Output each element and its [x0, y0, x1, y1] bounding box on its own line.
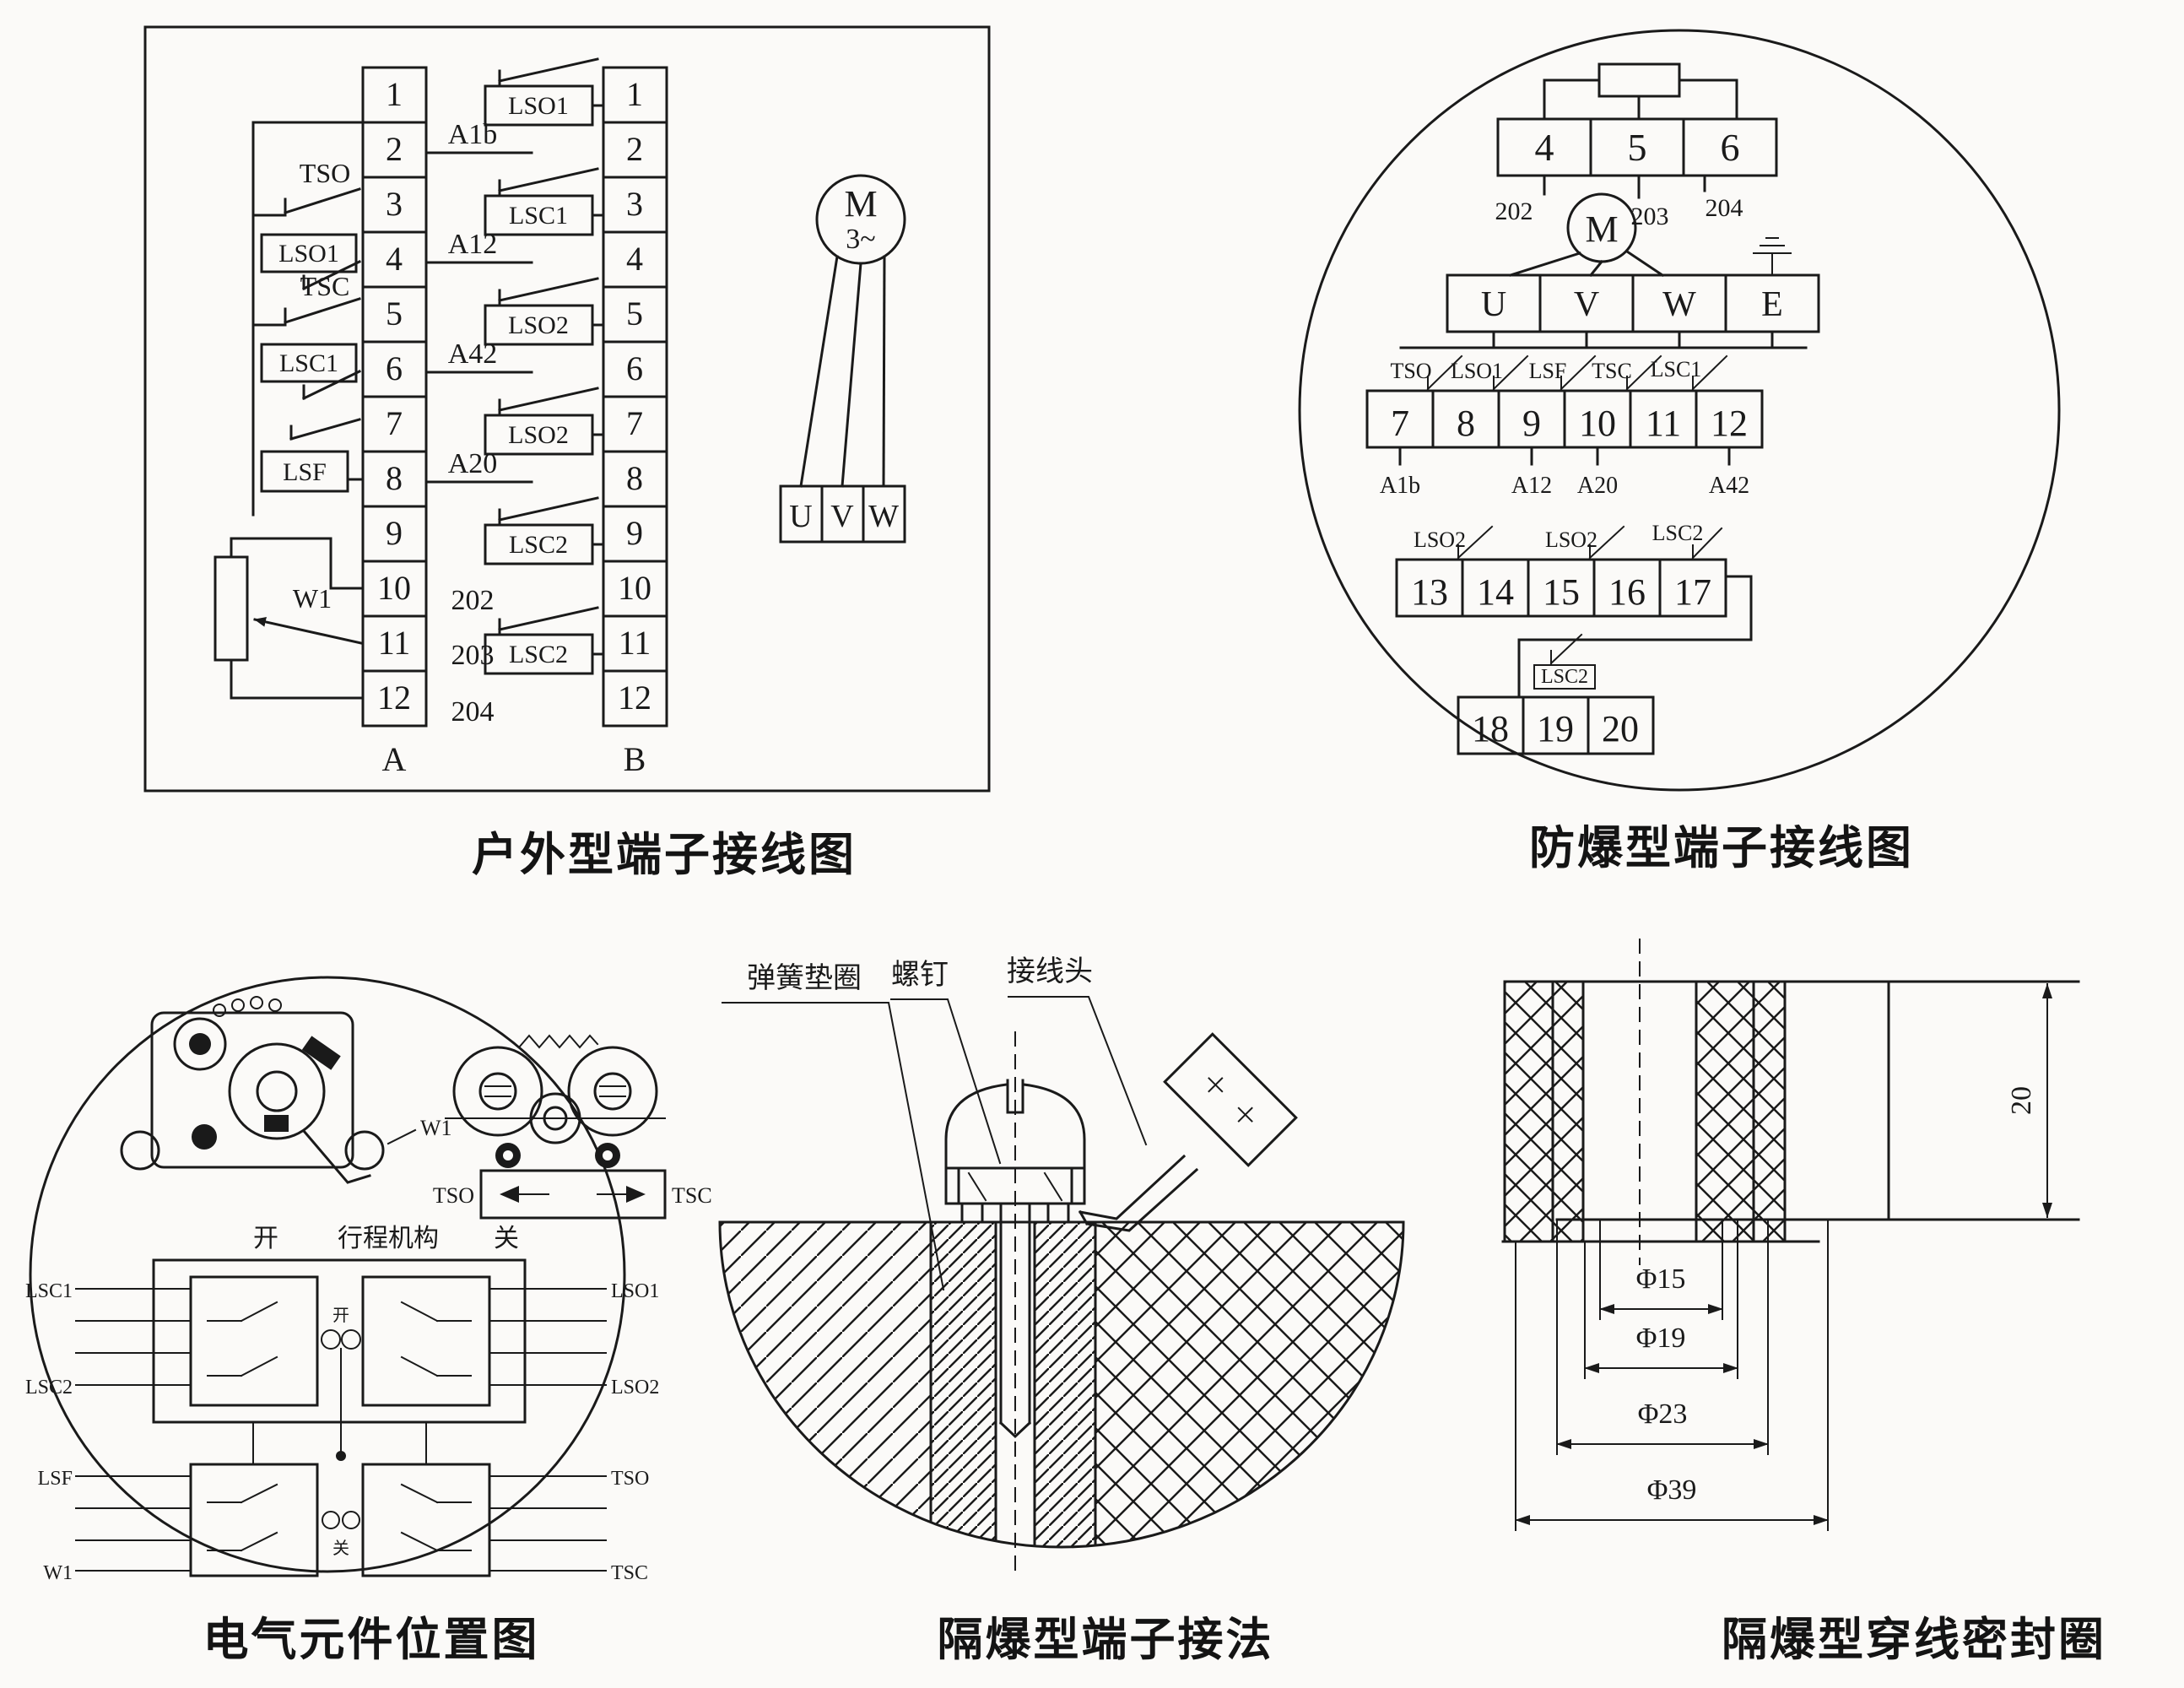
group1-lsc2-label: LSC2	[25, 1377, 73, 1399]
explosion-proof-figure: 4 5 6 202 203 204 M U V W E	[1266, 15, 2093, 819]
terminal-row-456: 4 5 6 202 203 204	[1495, 119, 1777, 230]
caption-seal-ring: 隔爆型穿线密封圈	[1644, 1602, 2184, 1669]
terminal-row-uvwe: U V W E	[1447, 275, 1819, 332]
motor-w: W	[868, 499, 899, 534]
travel-mechanism-label: 行程机构	[338, 1225, 439, 1252]
group2-lsf-label: LSF	[38, 1468, 73, 1490]
terminal-5: 5	[1628, 126, 1647, 169]
spring-washer-label: 弹簧垫圈	[747, 962, 862, 994]
label-204: 204	[1706, 194, 1743, 222]
motor-m: M	[844, 183, 877, 225]
label-202: 202	[451, 585, 495, 616]
motor-phase: 3~	[846, 224, 875, 255]
label-a42: A42	[1709, 473, 1749, 499]
terminal-14: 14	[1477, 571, 1514, 613]
close-label: 关	[494, 1225, 519, 1252]
terminal-b-8: 8	[626, 459, 643, 497]
terminal-a-1: 1	[386, 75, 403, 113]
terminal-row-18-20: 18 19 20	[1458, 697, 1653, 754]
terminal-a-4: 4	[386, 240, 403, 278]
switch-tso: TSO	[1390, 359, 1431, 383]
terminal-6: 6	[1721, 126, 1740, 169]
row3-switches: TSO LSO1 LSF TSC LSC1	[1390, 356, 1727, 389]
terminal-v: V	[1574, 285, 1599, 324]
motor-u: U	[789, 499, 812, 534]
height-dimension: 20	[2006, 984, 2047, 1217]
terminal-strip-a: 1 2 3 4 5 6 7 8 9 10 11 12 A	[363, 68, 426, 778]
seal-section	[1503, 939, 2079, 1264]
motor-symbol: M 3~ U V W	[781, 176, 905, 542]
label-202: 202	[1495, 197, 1533, 225]
switch-lsc1: LSC1	[1651, 357, 1702, 381]
terminal-a-8: 8	[386, 459, 403, 497]
outdoor-wiring-figure: 1 2 3 4 5 6 7 8 9 10 11 12 A A1b A12 A42…	[135, 17, 1013, 814]
terminal-connection-figure: 弹簧垫圈 螺钉 接线头	[690, 952, 1436, 1595]
torque-tso-label: TSO	[433, 1183, 474, 1208]
group1-center-mark: 开	[332, 1307, 349, 1325]
terminal-13: 13	[1411, 571, 1448, 613]
seal-ring-figure: 20 Φ15 Φ19 Φ23 Φ39	[1500, 927, 2150, 1610]
strip-b-switches: LSO1 LSC1 LSO2 LSO2 LSC2 LSC2	[485, 59, 603, 674]
label-203: 203	[451, 640, 495, 671]
pot-w1-label: W1	[420, 1116, 452, 1140]
dim-20: 20	[2006, 1086, 2037, 1115]
row4-switches: LSO2 LSO2 LSC2	[1414, 521, 1722, 558]
wire-lug	[1080, 1034, 1296, 1231]
terminal-b-1: 1	[626, 75, 643, 113]
terminal-b-5: 5	[626, 295, 643, 333]
terminal-w: W	[1662, 285, 1696, 324]
terminal-18: 18	[1472, 708, 1509, 749]
caption-outdoor-wiring: 户外型端子接线图	[394, 817, 934, 884]
terminal-b-11: 11	[619, 624, 651, 662]
pot-w1-label: W1	[293, 583, 332, 614]
motor-v: V	[830, 499, 854, 534]
b-switch-5: LSC2	[509, 531, 568, 559]
switch-group-2: 关 LSF W1 TSO TSC	[38, 1349, 650, 1584]
row3-wire-labels: A1b A12 A20 A42	[1380, 447, 1749, 499]
terminal-17: 17	[1674, 571, 1711, 613]
terminal-11: 11	[1646, 403, 1681, 444]
terminal-a-6: 6	[386, 349, 403, 387]
heater-resistor	[1544, 64, 1737, 119]
terminal-b-7: 7	[626, 404, 643, 442]
switch-lso1: LSO1	[1451, 359, 1503, 383]
terminal-b-10: 10	[618, 569, 651, 607]
switch-lsc1-label: LSC1	[279, 349, 338, 377]
terminal-row-7-12: 7 8 9 10 11 12	[1367, 391, 1762, 447]
terminal-b-3: 3	[626, 185, 643, 223]
group2-center-mark: 关	[332, 1539, 349, 1558]
switch-group-1: 开 LSC1 LSC2 LSO1 LSO2	[25, 1260, 659, 1422]
caption-terminal-method: 隔爆型端子接法	[835, 1602, 1376, 1669]
terminal-10: 10	[1579, 403, 1616, 444]
screw-label: 螺钉	[891, 959, 949, 991]
group1-lso2-label: LSO2	[611, 1377, 659, 1399]
terminal-a-3: 3	[386, 185, 403, 223]
terminal-b-2: 2	[626, 130, 643, 168]
b-switch-3: LSO2	[508, 311, 569, 339]
strip-a-switch-ladder: TSO LSO1 TSC LSC1 LSF	[253, 122, 363, 515]
group2-w1-label: W1	[43, 1562, 73, 1584]
row5-switch: LSC2	[1534, 635, 1595, 689]
terminal-15: 15	[1543, 571, 1580, 613]
switch-tsc: TSC	[1592, 359, 1632, 383]
open-label: 开	[253, 1225, 278, 1252]
terminal-4: 4	[1535, 126, 1554, 169]
terminal-19: 19	[1537, 708, 1574, 749]
terminal-u: U	[1481, 285, 1506, 324]
strip-b-label: B	[624, 740, 646, 778]
label-a1b: A1b	[1380, 473, 1420, 499]
group2-tsc-label: TSC	[611, 1562, 648, 1584]
terminal-a-11: 11	[378, 624, 411, 662]
terminal-7: 7	[1391, 403, 1409, 444]
strip-a-label: A	[382, 740, 407, 778]
switch-lsc2-a: LSC2	[1652, 521, 1704, 545]
b-switch-2: LSC1	[509, 202, 568, 230]
torque-mechanism: TSO TSC	[433, 1036, 712, 1218]
switch-tsc-label: TSC	[300, 271, 350, 301]
dim-phi23: Φ23	[1638, 1399, 1688, 1430]
terminal-a-12: 12	[377, 679, 411, 717]
ground-icon	[1754, 238, 1791, 275]
dim-phi15: Φ15	[1636, 1263, 1686, 1295]
dim-phi39: Φ39	[1647, 1474, 1697, 1506]
group1-lsc1-label: LSC1	[25, 1280, 73, 1302]
potentiometer-w1: W1	[215, 538, 361, 698]
switch-lsf-label: LSF	[283, 458, 327, 486]
outdoor-outer-frame	[145, 27, 989, 791]
terminal-a-7: 7	[386, 404, 403, 442]
group2-tso-label: TSO	[611, 1468, 649, 1490]
label-204: 204	[451, 696, 495, 728]
switch-lso1-label: LSO1	[278, 240, 339, 268]
terminal-row-13-17: 13 14 15 16 17	[1397, 560, 1726, 616]
b-switch-4: LSO2	[508, 421, 569, 449]
terminal-e: E	[1761, 285, 1783, 324]
diameter-dimensions: Φ15 Φ19 Φ23 Φ39	[1516, 1220, 1828, 1530]
b-switch-6: LSC2	[509, 641, 568, 668]
caption-explosion-wiring: 防爆型端子接线图	[1451, 810, 1992, 877]
mechanism-row-labels: 开 行程机构 关	[253, 1225, 519, 1252]
manual-page: 1 2 3 4 5 6 7 8 9 10 11 12 A A1b A12 A42…	[0, 0, 2184, 1688]
terminal-b-12: 12	[618, 679, 651, 717]
terminal-8: 8	[1457, 403, 1475, 444]
terminal-a-10: 10	[377, 569, 411, 607]
terminal-9: 9	[1522, 403, 1541, 444]
terminal-16: 16	[1608, 571, 1646, 613]
switch-tso-label: TSO	[300, 158, 350, 188]
group1-lso1-label: LSO1	[611, 1280, 659, 1302]
terminal-a-9: 9	[386, 514, 403, 552]
motor-m: M	[1585, 208, 1618, 250]
component-location-figure: W1 TSO TSC 开 行程机构 关 开 LSC	[25, 949, 633, 1633]
terminal-a-5: 5	[386, 295, 403, 333]
terminal-b-9: 9	[626, 514, 643, 552]
label-a12: A12	[1511, 473, 1552, 499]
terminal-a-2: 2	[386, 130, 403, 168]
terminal-20: 20	[1602, 708, 1639, 749]
switch-lsc2-b: LSC2	[1541, 666, 1588, 688]
terminal-strip-b: 1 2 3 4 5 6 7 8 9 10 11 12 B	[603, 68, 667, 778]
gland-body	[720, 1222, 1403, 1560]
caption-component-location: 电气元件位置图	[101, 1602, 641, 1669]
cam-mechanism: W1	[122, 997, 452, 1182]
terminal-b-6: 6	[626, 349, 643, 387]
switch-rail	[1401, 332, 1806, 348]
terminal-12: 12	[1711, 403, 1748, 444]
terminal-b-4: 4	[626, 240, 643, 278]
label-a20: A20	[1577, 473, 1618, 499]
b-switch-1: LSO1	[508, 92, 569, 120]
dim-phi19: Φ19	[1636, 1323, 1686, 1354]
wire-terminal-label: 接线头	[1007, 955, 1093, 987]
